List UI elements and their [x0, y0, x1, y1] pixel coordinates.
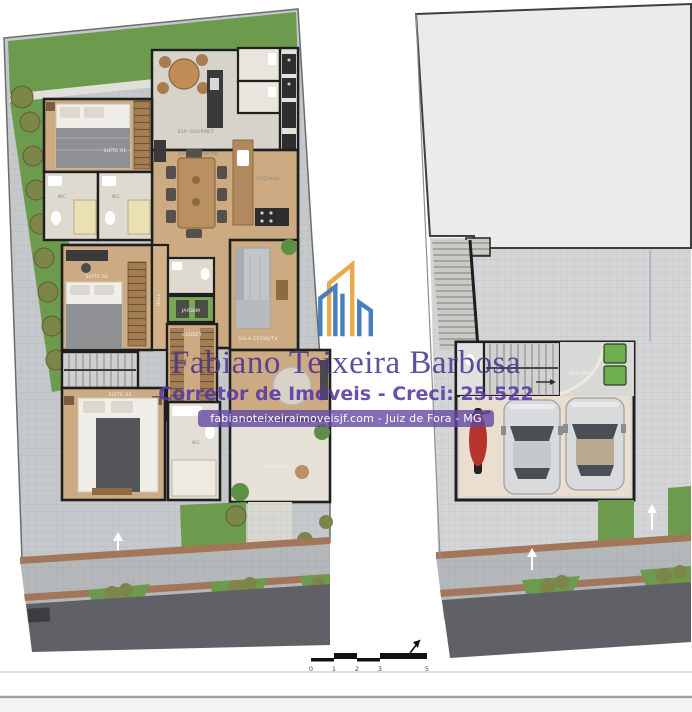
varanda-table — [295, 465, 309, 479]
garage-entry-area — [560, 342, 634, 396]
wc1-label: WC — [58, 194, 66, 200]
garage-stairs — [484, 342, 560, 396]
front-tree — [226, 506, 246, 526]
floorplans-drawing: ESP. GOURMET SALA DE JANTAR — [0, 0, 692, 712]
varanda-plant-1 — [231, 483, 249, 501]
varanda-plant-2 — [314, 424, 330, 440]
left-plan: ESP. GOURMET SALA DE JANTAR — [4, 9, 333, 652]
suite2-bed — [66, 282, 122, 348]
lavabo-toilet — [201, 268, 210, 280]
living-plant — [281, 239, 297, 255]
car-2 — [563, 398, 626, 490]
appliances — [282, 54, 296, 164]
road-patch — [28, 607, 51, 623]
bar-counter — [154, 140, 166, 162]
suite2-label: SUÍTE 02 — [85, 273, 108, 280]
wc2-label: WC — [112, 194, 120, 200]
front-bush-2 — [319, 515, 333, 529]
floorplan-image: ESP. GOURMET SALA DE JANTAR — [0, 0, 692, 712]
suite2-wardrobe — [128, 262, 146, 346]
closet-label: CLOSET — [182, 332, 202, 338]
suite2-chair — [81, 263, 91, 273]
planter-1 — [604, 344, 626, 363]
sofa — [236, 248, 270, 328]
wc3-toilet — [205, 425, 215, 439]
round-rug — [273, 367, 311, 405]
suite3-bed — [64, 396, 162, 495]
tv-cabinet — [320, 360, 328, 400]
island-sink — [210, 78, 219, 90]
service-fixture-1 — [268, 53, 276, 65]
north-arrow-icon — [410, 640, 420, 653]
suite1-label: SUÍTE 01 — [103, 147, 126, 154]
garage-wc — [456, 342, 484, 396]
suite1-bed — [46, 102, 130, 168]
wc3-sink — [172, 406, 202, 416]
kitchen-sink — [237, 150, 249, 166]
gourmet-label: ESP. GOURMET — [178, 129, 214, 135]
coffee-table — [276, 280, 288, 300]
depwc-label: DEP./WC — [569, 371, 590, 377]
stairs — [62, 352, 138, 388]
right-plan: DEP./WC GARAGEM — [416, 4, 691, 658]
right-grass-column — [598, 500, 634, 543]
planter-2 — [604, 366, 626, 385]
service-fixture-2 — [268, 87, 276, 97]
suite1-closet-shelves — [134, 101, 150, 169]
living-label: SALA ESTAR/TV — [238, 336, 278, 342]
garage-wc-toilet — [466, 354, 475, 366]
suite2-desk — [66, 250, 108, 261]
hall-label: HALL — [156, 293, 162, 306]
garden-label: JARDIM — [181, 308, 200, 314]
lavabo-sink — [172, 262, 182, 270]
scale-bar: 0 1 2 3 5 — [309, 653, 429, 673]
varanda-label: VARANDA — [264, 464, 289, 470]
car-1 — [501, 400, 563, 494]
stove — [255, 208, 289, 226]
suite3-label: SUÍTE 03 — [108, 391, 131, 398]
wc3-label: WC — [192, 440, 200, 446]
upper-slab — [416, 4, 691, 248]
wc3-shower — [172, 460, 216, 496]
bottom-strip — [0, 699, 692, 712]
kitchen-label: COZINHA — [257, 176, 280, 182]
